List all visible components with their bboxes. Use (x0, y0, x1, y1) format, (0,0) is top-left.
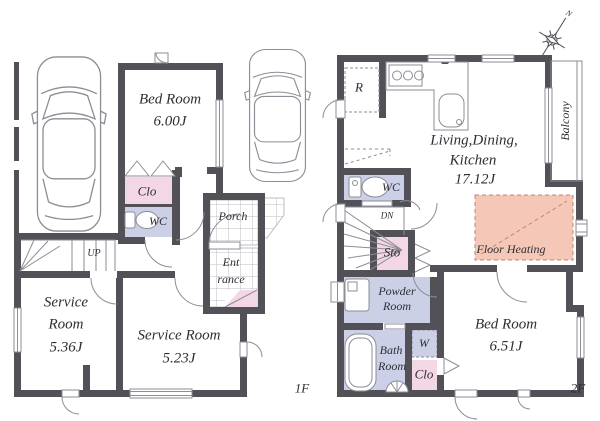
service-room-1-name-line2: Room (49, 318, 84, 333)
closet-1f-label: Clo (138, 185, 157, 198)
wc-1f-label: WC (149, 215, 167, 227)
powder-room-label-line1: Powder (378, 285, 415, 297)
washer-label: W (419, 337, 429, 349)
stove-icon (389, 65, 422, 86)
ldk-size: 17.12J (455, 173, 495, 188)
entrance-label-line2: rance (217, 273, 244, 285)
bath-room-label-line2: Room (378, 360, 406, 372)
closet-2f-label: Clo (415, 368, 434, 381)
sink-icon (439, 94, 464, 127)
floor-heating-label: Floor Heating (477, 243, 546, 255)
ldk-label-line1: Living,Dining, (430, 134, 518, 149)
storage-door-icon (415, 244, 430, 272)
floor1-stairs (20, 240, 115, 271)
stairs-up-label: UP (87, 249, 100, 259)
bath-room-label-line1: Bath (380, 344, 403, 356)
floor2-label: 2F (571, 382, 585, 395)
ldk-label-line2: Kitchen (450, 154, 497, 169)
closet-2f-door-icon (444, 358, 459, 374)
storage-label: Sto (384, 246, 401, 259)
floor1-label: 1F (295, 382, 309, 395)
entrance-label-line1: Ent (223, 256, 240, 268)
bedroom-1f-size: 6.00J (154, 115, 187, 130)
car-2 (245, 49, 311, 181)
floorplan: N Bed Room 6.00J Clo WC Porch Ent rance … (0, 0, 600, 421)
porch-label: Porch (219, 210, 248, 222)
bedroom-1f-label: Bed Room (139, 93, 201, 108)
powder-room-label-line2: Room (383, 300, 411, 312)
toilet-tank-1f (125, 212, 135, 228)
bedroom-2f-label: Bed Room (475, 318, 537, 333)
service-room-1-name-line1: Service (44, 296, 88, 311)
compass-north-label: N (563, 8, 574, 19)
service-room-1-size: 5.36J (50, 341, 83, 356)
service-room-2-name: Service Room (138, 329, 221, 344)
car-1 (32, 57, 106, 231)
wc-2f-label: WC (382, 181, 400, 193)
balcony-label: Balcony (559, 101, 571, 140)
front-door-leaf (209, 242, 240, 249)
closet-door-icon (125, 161, 149, 176)
refrigerator-label: R (355, 81, 363, 94)
closet-door-icon (151, 161, 175, 176)
stairs-down-label: DN (381, 212, 394, 221)
service-room-2-size: 5.23J (163, 352, 196, 367)
bedroom-2f-size: 6.51J (490, 340, 523, 355)
floorplan-drawing: N (0, 0, 600, 421)
